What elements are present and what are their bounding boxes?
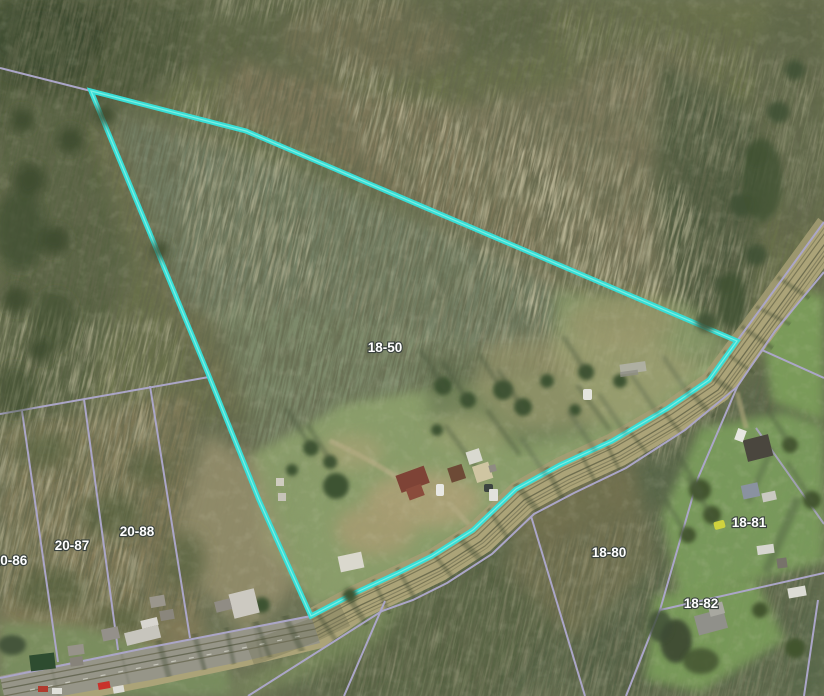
svg-text:18-81: 18-81 bbox=[732, 515, 767, 530]
svg-text:20-87: 20-87 bbox=[55, 538, 90, 553]
svg-text:20-88: 20-88 bbox=[120, 524, 155, 539]
svg-text:18-80: 18-80 bbox=[592, 545, 627, 560]
svg-text:18-82: 18-82 bbox=[684, 596, 719, 611]
svg-text:18-50: 18-50 bbox=[368, 340, 403, 355]
svg-text:20-86: 20-86 bbox=[0, 553, 28, 568]
